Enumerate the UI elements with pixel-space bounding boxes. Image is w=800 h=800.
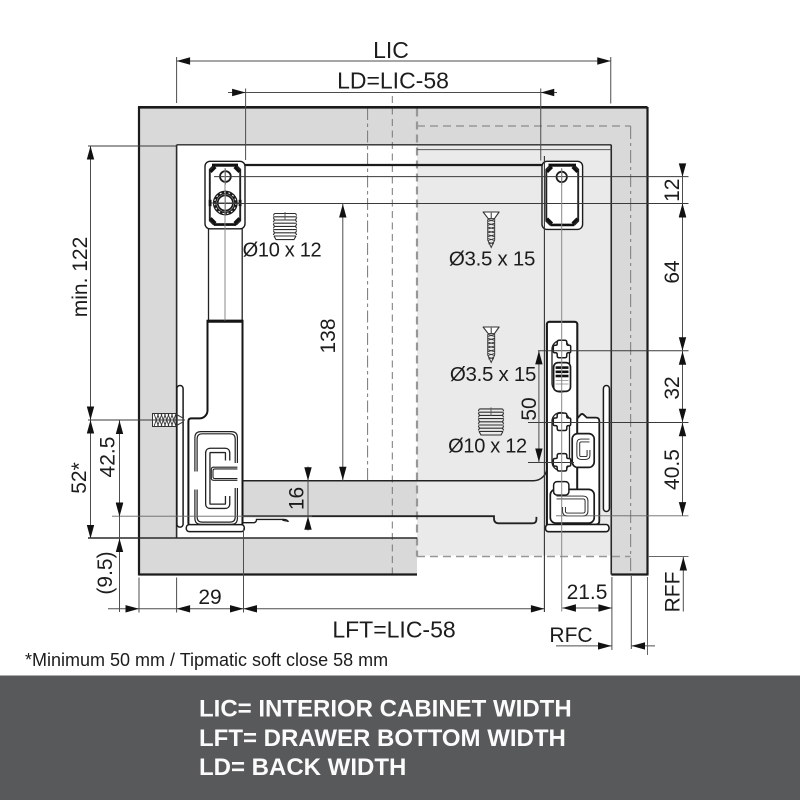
svg-text:Ø3.5 x 15: Ø3.5 x 15: [449, 247, 535, 270]
svg-text:LFT= DRAWER BOTTOM WIDTH: LFT= DRAWER BOTTOM WIDTH: [199, 725, 566, 752]
svg-text:16: 16: [286, 487, 309, 510]
svg-text:LIC: LIC: [373, 37, 409, 63]
svg-text:LFT=LIC-58: LFT=LIC-58: [332, 617, 455, 643]
svg-text:21.5: 21.5: [567, 581, 608, 604]
svg-text:50: 50: [518, 397, 541, 420]
svg-text:LIC= INTERIOR CABINET WIDTH: LIC= INTERIOR CABINET WIDTH: [199, 696, 572, 723]
svg-text:LD=LIC-58: LD=LIC-58: [337, 68, 449, 94]
svg-text:Ø10 x 12: Ø10 x 12: [243, 240, 322, 262]
svg-text:42.5: 42.5: [97, 437, 120, 478]
svg-text:Ø3.5 x 15: Ø3.5 x 15: [450, 363, 536, 386]
svg-text:RFF: RFF: [662, 572, 685, 613]
svg-text:40.5: 40.5: [661, 449, 684, 490]
svg-text:*Minimum 50 mm / Tipmatic soft: *Minimum 50 mm / Tipmatic soft close 58 …: [25, 650, 388, 670]
svg-text:52*: 52*: [68, 462, 91, 494]
svg-text:LD= BACK WIDTH: LD= BACK WIDTH: [199, 754, 406, 781]
svg-text:29: 29: [198, 586, 221, 609]
svg-text:min. 122: min. 122: [69, 237, 92, 318]
svg-text:RFC: RFC: [549, 624, 592, 647]
svg-text:12: 12: [661, 179, 684, 202]
svg-text:32: 32: [661, 376, 684, 399]
svg-text:(9.5): (9.5): [94, 551, 117, 594]
svg-text:64: 64: [661, 260, 684, 284]
svg-text:Ø10 x 12: Ø10 x 12: [448, 436, 527, 458]
svg-text:138: 138: [317, 318, 340, 353]
